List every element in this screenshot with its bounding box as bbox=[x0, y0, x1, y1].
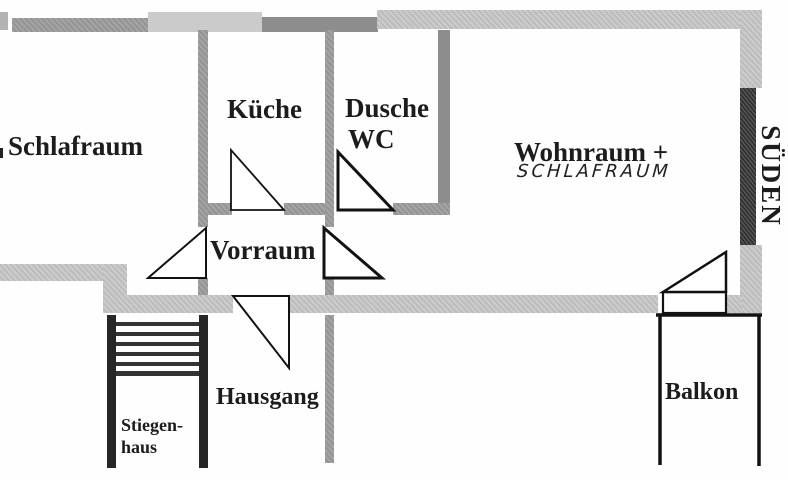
linework-layer bbox=[0, 0, 788, 480]
door-swing-kueche bbox=[231, 150, 284, 210]
label-schlafraum: Schlafraum bbox=[8, 132, 143, 160]
door-swing-vorraum bbox=[324, 228, 382, 278]
label-hausgang: Hausgang bbox=[216, 385, 319, 410]
label-wc: WC bbox=[348, 125, 395, 153]
door-swing-schlafraum bbox=[148, 228, 206, 278]
balkon-door-leaf bbox=[663, 292, 726, 313]
label-vorraum: Vorraum bbox=[210, 236, 316, 264]
label-stiegenhaus-line2: haus bbox=[121, 437, 183, 459]
door-swing-dusche-wc bbox=[338, 152, 393, 210]
label-balkon: Balkon bbox=[665, 380, 738, 405]
floor-plan: Schlafraum Küche Dusche WC Wohnraum + SC… bbox=[0, 0, 788, 480]
label-kueche: Küche bbox=[227, 95, 302, 123]
door-swing-hausgang bbox=[233, 296, 289, 368]
label-dusche: Dusche bbox=[345, 94, 429, 122]
label-stiegenhaus: Stiegen- haus bbox=[121, 415, 183, 459]
label-sueden-compass: SÜDEN bbox=[757, 125, 785, 227]
door-swing-balkon bbox=[663, 252, 726, 292]
label-wohnraum-handwritten: SCHLAFRAUM bbox=[516, 163, 671, 182]
label-stiegenhaus-line1: Stiegen- bbox=[121, 415, 183, 437]
